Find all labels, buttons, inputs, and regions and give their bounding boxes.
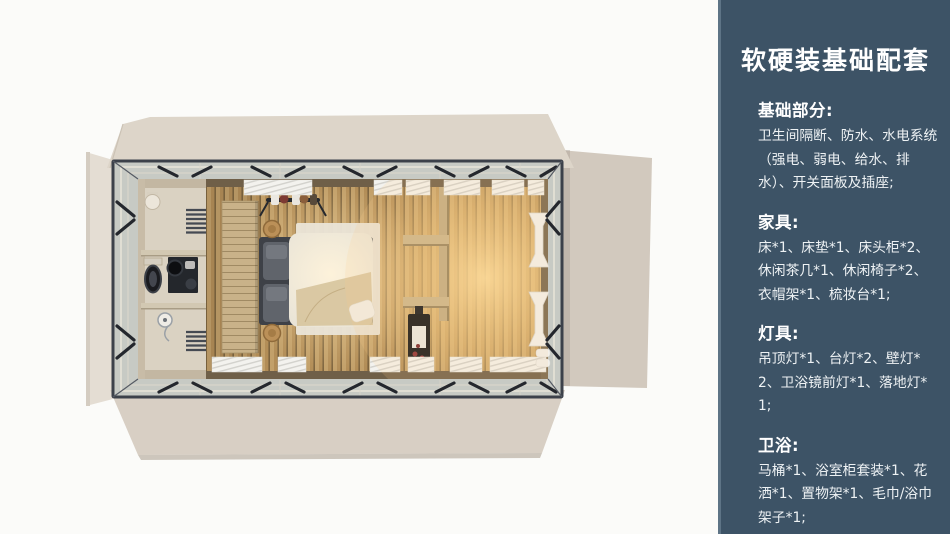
section-body: 马桶*1、浴室柜套装*1、花洒*1、置物架*1、毛巾/浴巾架子*1;: [758, 460, 940, 531]
floorplan-svg: [0, 0, 718, 534]
section-list: 基础部分: 卫生间隔断、防水、水电系统（强电、弱电、给水、排水）、开关面板及插座…: [758, 98, 940, 534]
toilet: [144, 258, 162, 293]
section-heading: 灯具:: [758, 321, 940, 346]
page-title: 软硬装基础配套: [729, 46, 942, 76]
section-body: 床*1、床垫*1、床头柜*2、休闲茶几*1、休闲椅子*2、衣帽架*1、梳妆台*1…: [758, 237, 940, 308]
right-flap: [560, 150, 652, 388]
section-heading: 卫浴:: [758, 433, 940, 458]
section-body: 卫生间隔断、防水、水电系统（强电、弱电、给水、排水）、开关面板及插座;: [758, 125, 940, 196]
floorplan-render: [0, 0, 718, 534]
section-lighting: 灯具: 吊顶灯*1、台灯*2、壁灯*2、卫浴镜前灯*1、落地灯*1;: [758, 321, 940, 419]
section-heading: 基础部分:: [758, 98, 940, 123]
section-heading: 家具:: [758, 210, 940, 235]
left-flap: [86, 152, 113, 406]
info-panel: 软硬装基础配套 基础部分: 卫生间隔断、防水、水电系统（强电、弱电、给水、排水）…: [718, 0, 950, 534]
headboard-panel: [222, 201, 259, 353]
section-furniture: 家具: 床*1、床垫*1、床头柜*2、休闲茶几*1、休闲椅子*2、衣帽架*1、梳…: [758, 210, 940, 308]
water-heater: [145, 192, 160, 210]
section-basics: 基础部分: 卫生间隔断、防水、水电系统（强电、弱电、给水、排水）、开关面板及插座…: [758, 98, 940, 196]
bottom-flap: [110, 390, 565, 455]
stool: [186, 279, 197, 290]
bathroom: [138, 179, 206, 379]
section-bathroom: 卫浴: 马桶*1、浴室柜套装*1、花洒*1、置物架*1、毛巾/浴巾架子*1;: [758, 433, 940, 531]
section-body: 吊顶灯*1、台灯*2、壁灯*2、卫浴镜前灯*1、落地灯*1;: [758, 348, 940, 419]
slide: 软硬装基础配套 基础部分: 卫生间隔断、防水、水电系统（强电、弱电、给水、排水）…: [0, 0, 950, 534]
vanity: [168, 257, 199, 293]
